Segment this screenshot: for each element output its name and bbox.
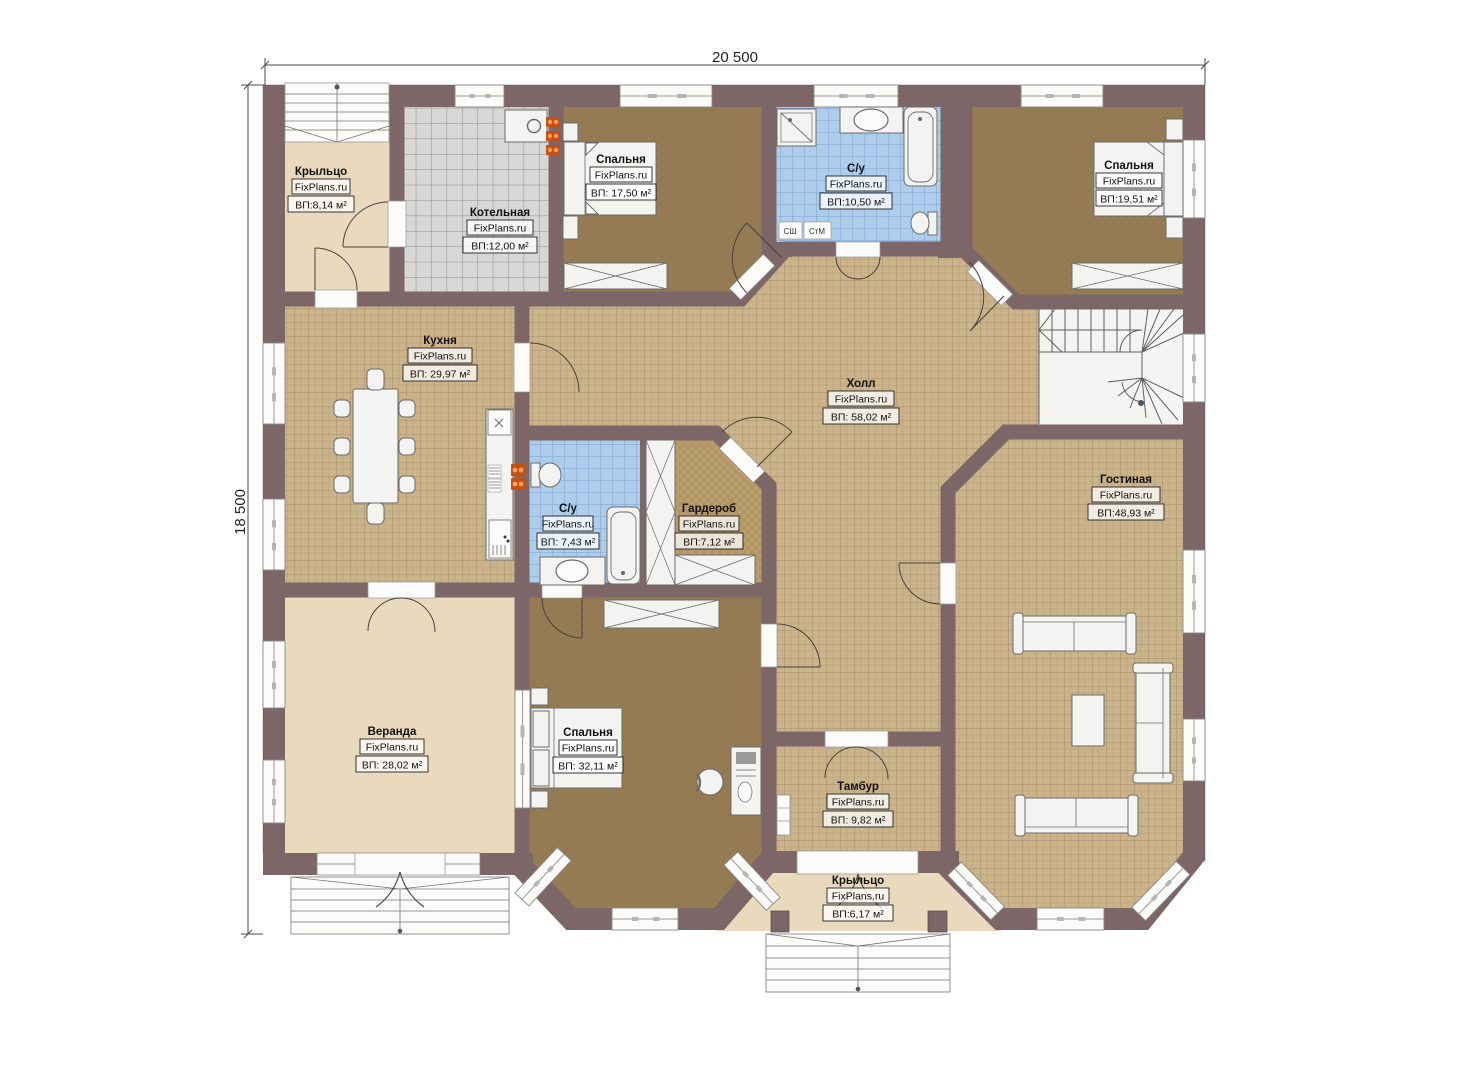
- svg-text:FixPlans.ru: FixPlans.ru: [1103, 176, 1156, 188]
- svg-text:ВП: 29,97 м²: ВП: 29,97 м²: [410, 369, 471, 381]
- svg-text:ВП:6,17 м²: ВП:6,17 м²: [832, 909, 884, 921]
- svg-text:Крыльцо: Крыльцо: [295, 166, 347, 178]
- svg-text:FixPlans.ru: FixPlans.ru: [474, 223, 527, 235]
- svg-text:Спальня: Спальня: [1104, 160, 1154, 172]
- svg-text:FixPlans.ru: FixPlans.ru: [832, 797, 885, 809]
- svg-text:Котельная: Котельная: [470, 207, 530, 219]
- svg-text:ВП: 9,82 м²: ВП: 9,82 м²: [831, 815, 886, 827]
- svg-text:FixPlans.ru: FixPlans.ru: [295, 182, 348, 194]
- svg-text:ВП: 28,02 м²: ВП: 28,02 м²: [362, 760, 423, 772]
- svg-text:FixPlans.ru: FixPlans.ru: [414, 351, 467, 363]
- svg-text:Гардероб: Гардероб: [682, 503, 736, 515]
- svg-text:ВП:48,93 м²: ВП:48,93 м²: [1097, 508, 1155, 520]
- svg-text:FixPlans.ru: FixPlans.ru: [542, 519, 595, 531]
- svg-text:FixPlans.ru: FixPlans.ru: [832, 891, 885, 903]
- svg-text:ВП:12,00 м²: ВП:12,00 м²: [471, 241, 529, 253]
- svg-text:FixPlans.ru: FixPlans.ru: [835, 394, 888, 406]
- svg-text:Гостиная: Гостиная: [1100, 474, 1152, 486]
- svg-text:FixPlans.ru: FixPlans.ru: [366, 742, 419, 754]
- svg-text:ВП: 17,50 м²: ВП: 17,50 м²: [591, 188, 652, 200]
- svg-text:С/у: С/у: [847, 163, 866, 175]
- svg-text:Спальня: Спальня: [563, 727, 613, 739]
- svg-text:Холл: Холл: [847, 378, 876, 390]
- svg-text:С/у: С/у: [559, 503, 578, 515]
- svg-text:FixPlans.ru: FixPlans.ru: [830, 179, 883, 191]
- svg-text:20 500: 20 500: [712, 49, 758, 66]
- svg-text:ВП:8,14 м²: ВП:8,14 м²: [295, 200, 347, 212]
- svg-text:ВП: 32,11 м²: ВП: 32,11 м²: [558, 761, 618, 773]
- svg-text:Кухня: Кухня: [423, 335, 457, 347]
- svg-text:FixPlans.ru: FixPlans.ru: [595, 170, 648, 182]
- svg-text:Крыльцо: Крыльцо: [832, 875, 884, 887]
- svg-text:Спальня: Спальня: [596, 154, 646, 166]
- svg-text:FixPlans.ru: FixPlans.ru: [683, 519, 736, 531]
- svg-text:ВП: 7,43 м²: ВП: 7,43 м²: [541, 537, 596, 549]
- svg-text:ВП:7,12 м²: ВП:7,12 м²: [683, 537, 735, 549]
- svg-text:18 500: 18 500: [232, 489, 249, 535]
- svg-text:ВП:10,50 м²: ВП:10,50 м²: [827, 197, 885, 209]
- svg-text:FixPlans.ru: FixPlans.ru: [1100, 490, 1153, 502]
- svg-text:СтМ: СтМ: [809, 227, 825, 236]
- svg-text:ВП:19,51 м²: ВП:19,51 м²: [1100, 194, 1158, 206]
- svg-text:FixPlans.ru: FixPlans.ru: [562, 743, 615, 755]
- svg-text:ВП: 58,02 м²: ВП: 58,02 м²: [831, 412, 892, 424]
- svg-text:Тамбур: Тамбур: [837, 781, 879, 793]
- svg-text:Веранда: Веранда: [368, 726, 417, 738]
- svg-text:СШ: СШ: [783, 227, 796, 236]
